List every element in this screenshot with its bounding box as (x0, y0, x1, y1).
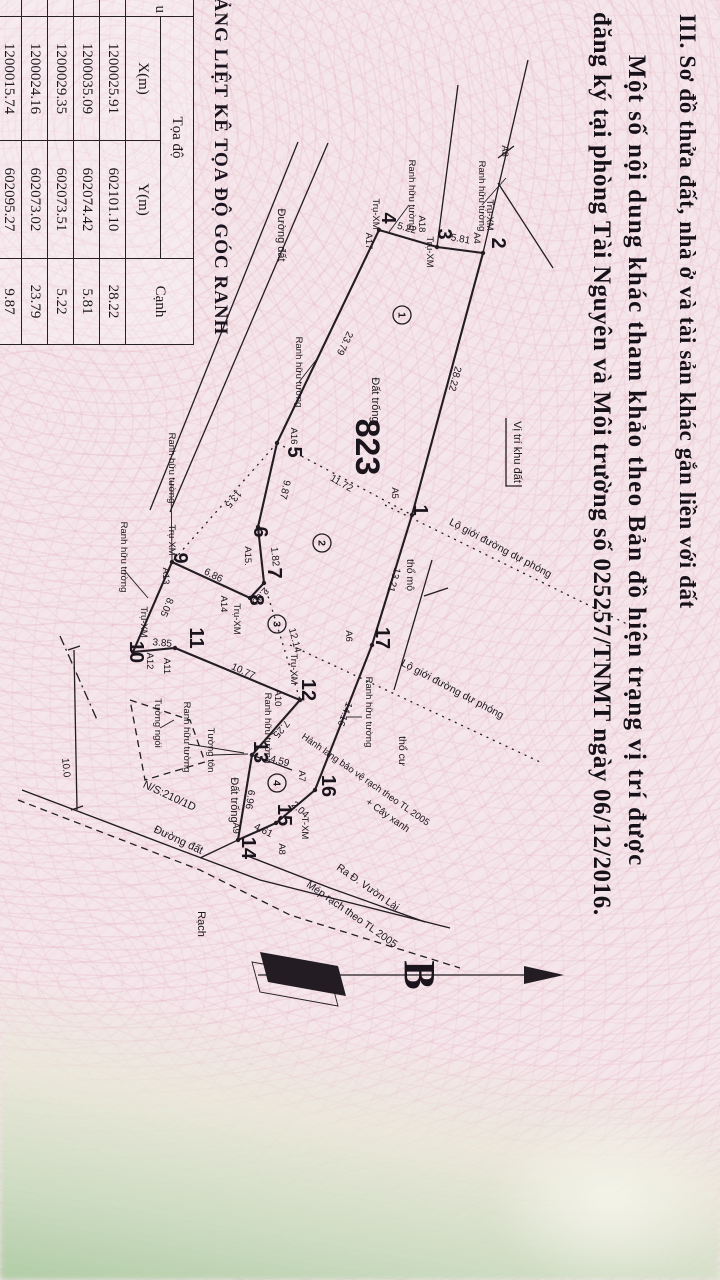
table-cell: 602073.02 (22, 141, 48, 259)
map-label: Ranh hữu tường (262, 693, 273, 764)
table-col-fragment: u (126, 0, 194, 17)
table-row: 1200024.16602073.0223.79 (22, 0, 48, 345)
table-cell: 1200025.91 (100, 17, 126, 141)
table-cell: 602095.27 (0, 141, 22, 259)
dimension-label: 8.05 (157, 596, 175, 619)
table-cell: 28.22 (100, 259, 126, 345)
table-cell: 23.79 (22, 259, 48, 345)
marker-label: A11 (161, 658, 172, 674)
marker-label: Trụ-XM (138, 606, 149, 637)
map-label: Đất trống (228, 777, 240, 822)
marker-label: A13 (160, 568, 171, 585)
document-photo: III. Sơ đồ thửa đất, nhà ở và tài sản kh… (0, 0, 720, 1280)
table-col-x: X(m) (126, 17, 161, 141)
table-row: 1200015.74602095.279.87 (0, 0, 22, 345)
marker-label: A8 (276, 843, 287, 855)
region-badge: 4 (268, 774, 286, 792)
marker-label: A16 (288, 428, 299, 445)
marker-label: T-XM (299, 817, 310, 840)
map-label: thổ mộ (404, 559, 416, 591)
dimension-label: 11.72 (328, 473, 355, 495)
map-label: Ranh hữu tường (293, 337, 304, 408)
map-label: Ranh hữu tường (181, 702, 192, 773)
marker-label: A15. (242, 546, 253, 566)
map-label: Đường đất (275, 208, 287, 261)
dimension-label: 1.82 (268, 546, 281, 567)
map-label: Rạch (195, 911, 207, 937)
marker-label: A7 (296, 770, 307, 782)
point-number: 16 (317, 775, 339, 797)
dimension-label: 13.21 (384, 566, 402, 594)
table-cell: 1200029.35 (48, 17, 74, 141)
table-col-edge: Cạnh (126, 259, 194, 345)
rotated-document: III. Sơ đồ thửa đất, nhà ở và tài sản kh… (0, 0, 720, 1280)
table-cell: 9.87 (0, 259, 22, 345)
map-label: Vị trí khu đất (511, 421, 523, 483)
marker-label: A9 (230, 822, 241, 834)
point-number: 1 (409, 504, 431, 515)
map-label: N/S:210/1D (141, 779, 198, 814)
table-row: 1200025.91602101.1028.22 (100, 0, 126, 345)
map-label: Đường đất (152, 824, 205, 857)
dimension-label: 6.96 (242, 789, 256, 810)
point-number: 7 (263, 567, 285, 578)
dimension-label: 13.5 (222, 488, 243, 510)
point-number: 17 (371, 627, 393, 649)
table-cell: 5.22 (48, 259, 74, 345)
map-label: Đất trống (369, 377, 381, 422)
map-label: Ranh hữu tường (406, 160, 417, 231)
coordinate-table: u Tọa độ Cạnh X(m) Y(m) 1200025.91602101… (0, 0, 194, 345)
marker-label: A17 (363, 233, 374, 250)
map-label: thổ cư (396, 736, 408, 766)
map-label: Tường tôn (205, 728, 216, 773)
point-number: 14 (237, 837, 259, 860)
dimension-label: 3.85 (152, 637, 173, 650)
dimension-label: 12.14 (286, 627, 303, 654)
marker-label: Trụ-XM (424, 236, 435, 267)
table-col-y: Y(m) (126, 141, 161, 259)
map-label: Lộ giới đường dự phóng (447, 516, 554, 580)
table-cell: 5.81 (74, 259, 100, 345)
point-number: 2 (487, 237, 509, 248)
table-cell: 1200024.16 (22, 17, 48, 141)
marker-label: Trụ-XM (370, 198, 381, 229)
north-label: B (395, 960, 444, 989)
table-cell: 602101.10 (100, 141, 126, 259)
table-cell: 1200015.74 (0, 17, 22, 141)
marker-label: Trụ-XM (231, 603, 242, 634)
marker-label: A4 (471, 232, 482, 244)
table-row: 1200029.35602073.515.22 (48, 0, 74, 345)
map-label: Tường ngói (152, 698, 163, 748)
plot-number-label: 823 (348, 419, 386, 476)
point-number: 6 (249, 526, 271, 537)
table-cell: 1200035.09 (74, 17, 100, 141)
table-cell (48, 0, 74, 17)
point-number: 11 (185, 627, 207, 648)
map-label: Ranh hữu tường (118, 522, 129, 593)
marker-label: Trụ-XM (166, 524, 177, 555)
table-row: 1200035.09602074.425.81 (74, 0, 100, 345)
dimension-label: 9.87 (277, 479, 292, 501)
marker-label: Trụ-XM (288, 653, 299, 684)
region-number: 4 (271, 780, 283, 786)
marker-label: A12 (144, 653, 155, 670)
map-label: 10.0 (59, 757, 72, 778)
dimension-label: 6.86 (202, 566, 225, 585)
region-badge: 3 (268, 615, 286, 633)
region-badge: 1 (393, 306, 411, 324)
dimension-label: 5.81 (450, 232, 472, 246)
region-number: 2 (316, 540, 328, 546)
dimension-label: 10.77 (229, 661, 257, 682)
table-cell (22, 0, 48, 17)
table-cell (100, 0, 126, 17)
north-bar-symbol (260, 952, 346, 996)
region-badge: 2 (313, 534, 331, 552)
map-label: Ranh hữu tường (363, 677, 374, 748)
point-number: 5 (283, 446, 305, 457)
table-cell (74, 0, 100, 17)
marker-label: A14 (218, 596, 229, 613)
table-cell: 602073.51 (48, 141, 74, 259)
table-cell (0, 0, 22, 17)
table-group-header: Tọa độ (161, 17, 194, 259)
region-number: 3 (271, 621, 283, 627)
dimension-label: 14.16 (335, 700, 354, 728)
region-number: 1 (396, 312, 408, 318)
north-arrow: B (252, 952, 564, 1006)
dimension-label: 23.79 (334, 329, 355, 357)
north-arrow-head (524, 966, 564, 984)
map-label: Lộ giới đường dự phóng (399, 657, 506, 721)
map-label: Mép rạch theo TL 2005 (304, 879, 399, 951)
map-label: Ranh hữu tường (166, 433, 177, 504)
dash-dot-line (60, 636, 98, 722)
marker-label: A6 (343, 630, 354, 642)
map-label: Ranh hữu tường (476, 161, 487, 232)
point-number: 12 (297, 679, 319, 701)
marker-label: A3 (499, 145, 510, 157)
table-cell: 602074.42 (74, 141, 100, 259)
point-number: 10 (125, 641, 147, 663)
marker-label: A5 (389, 487, 400, 499)
table-title: BẢNG LIỆT KÊ TỌA ĐỘ GÓC RANH (209, 0, 231, 335)
